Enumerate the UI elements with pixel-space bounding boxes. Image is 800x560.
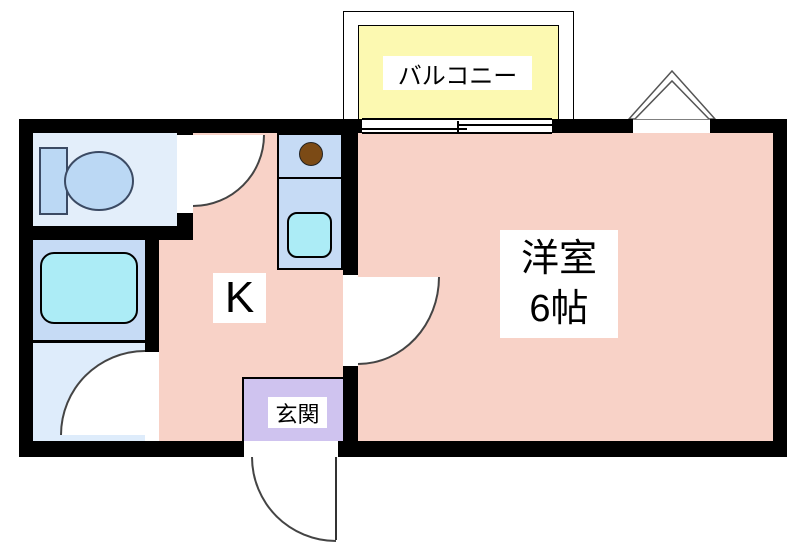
balcony-window bbox=[362, 118, 552, 134]
entrance-door-opening bbox=[244, 441, 338, 457]
window-pane-line-left bbox=[362, 128, 467, 130]
kitchen-label-text: K bbox=[225, 273, 254, 323]
wall-right bbox=[773, 119, 787, 457]
balcony-label: バルコニー bbox=[383, 56, 532, 90]
wall-top-mid-segment bbox=[552, 119, 633, 133]
stove-burner-icon bbox=[299, 142, 323, 166]
balcony-label-text: バルコニー bbox=[398, 56, 518, 91]
toilet-right-wall-lower bbox=[177, 213, 193, 240]
sink-icon bbox=[287, 212, 332, 258]
floor-plan: バルコニー bbox=[0, 0, 800, 560]
toilet-bowl-icon bbox=[64, 151, 134, 211]
kitchen-mainroom-wall-upper bbox=[343, 133, 358, 275]
window-pane-line-right bbox=[458, 124, 552, 126]
kitchen-label: K bbox=[213, 273, 266, 323]
main-room-name-text: 洋室 bbox=[521, 234, 597, 284]
counter-divider bbox=[279, 177, 341, 179]
washroom-right-wall bbox=[145, 240, 159, 352]
entrance-label-text: 玄関 bbox=[275, 397, 319, 429]
wall-left bbox=[19, 119, 33, 457]
main-room-door-opening bbox=[343, 275, 358, 366]
kitchen-mainroom-wall-lower bbox=[343, 366, 358, 457]
entrance-door-swing bbox=[251, 457, 336, 542]
toilet-door-opening bbox=[177, 135, 193, 213]
window-center-tick bbox=[457, 121, 459, 132]
washroom-door-opening bbox=[145, 352, 159, 441]
entrance-label: 玄関 bbox=[268, 397, 327, 428]
wall-bottom-left-segment bbox=[19, 441, 244, 457]
wall-bottom-right-segment bbox=[338, 441, 787, 457]
bath-washroom-divider bbox=[33, 340, 145, 343]
kitchen-counter bbox=[277, 133, 343, 270]
main-room-size-text: 6帖 bbox=[529, 284, 588, 334]
toilet-bottom-wall bbox=[19, 226, 193, 240]
main-room-label: 洋室 6帖 bbox=[500, 230, 618, 338]
bathtub-icon bbox=[40, 252, 138, 324]
